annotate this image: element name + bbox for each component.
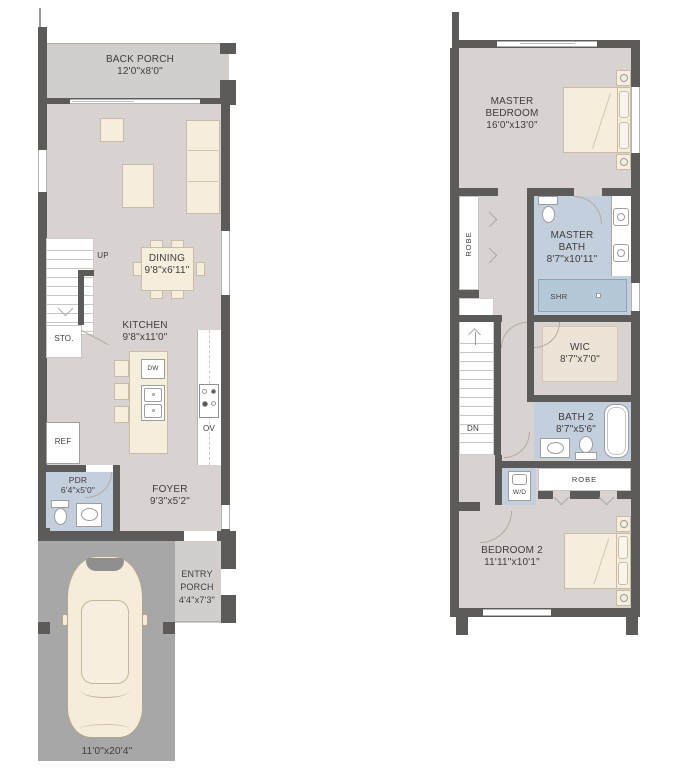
room-name: MASTER BEDROOM <box>477 96 547 120</box>
washer-lid <box>512 474 527 485</box>
dishwasher-label: DW <box>141 365 165 373</box>
lamp <box>620 158 628 166</box>
robe-label: ROBE <box>463 224 475 264</box>
room-name: FOYER <box>138 484 202 496</box>
room-dims: 11'11"x10'1" <box>477 557 547 569</box>
storage-label: STO. <box>46 334 82 343</box>
armchair <box>100 118 124 142</box>
sink-bowl <box>617 249 625 257</box>
floor2-master-bath-label: MASTER BATH 8'7"x10'11" <box>542 230 602 266</box>
floor2-wic-label: WIC 8'7"x7'0" <box>550 342 610 366</box>
bed2 <box>564 533 617 589</box>
wall <box>617 491 632 499</box>
wall <box>221 595 236 623</box>
wall <box>450 290 479 298</box>
driveway-dims: 11'0"x20'4" <box>57 746 157 758</box>
floor2-master-bedroom-label: MASTER BEDROOM 16'0"x13'0" <box>477 96 547 132</box>
toilet-bowl <box>54 508 67 525</box>
burner <box>211 401 216 406</box>
room-dims: 4'4"x7'3" <box>171 594 223 607</box>
lamp <box>620 594 628 602</box>
wall <box>602 188 632 196</box>
bar-stool <box>114 360 129 377</box>
pillow <box>619 122 629 149</box>
room-dims: 9'8"x11'0" <box>109 332 181 344</box>
dining-chair <box>150 290 163 299</box>
coffee-table <box>122 164 154 208</box>
room-name: DINING <box>135 253 199 265</box>
wall <box>113 465 120 541</box>
wall <box>450 315 502 322</box>
floor1-foyer-label: FOYER 9'3"x5'2" <box>138 484 202 508</box>
sink-bowl <box>617 213 625 221</box>
master-bed <box>563 87 619 153</box>
floorplan: BACK PORCH 12'0"x8'0" UP STO. DINING 9'8… <box>0 0 675 783</box>
wall <box>220 43 236 54</box>
sofa <box>186 120 220 214</box>
pillow <box>618 562 628 585</box>
window <box>221 231 230 295</box>
front-door-opening <box>184 531 217 541</box>
room-name: BEDROOM 2 <box>477 545 547 557</box>
room-name: WIC <box>550 342 610 354</box>
room-name: MASTER BATH <box>542 230 602 254</box>
robe-label: ROBE <box>538 474 631 486</box>
room-name: ENTRY PORCH <box>171 568 223 594</box>
bathtub-inner <box>607 407 626 455</box>
dining-chair <box>171 290 184 299</box>
lamp <box>620 520 628 528</box>
floor1-dining-label: DINING 9'8"x6'11" <box>135 253 199 277</box>
room-dims: 16'0"x13'0" <box>477 120 547 132</box>
bar-stool <box>114 406 129 423</box>
room-dims: 12'0"x8'0" <box>90 66 190 78</box>
toilet <box>51 500 69 508</box>
sink-drain <box>152 409 155 412</box>
wall <box>626 617 638 635</box>
floor1-pdr-label: PDR 6'4"x5'0" <box>46 475 110 495</box>
floor1-entry-porch-label: ENTRY PORCH 4'4"x7'3" <box>171 568 223 607</box>
stair-treads <box>46 250 94 335</box>
window <box>631 87 640 153</box>
floor1-back-porch-label: BACK PORCH 12'0"x8'0" <box>90 54 190 78</box>
stairs-down-label: DN <box>462 424 484 433</box>
wall <box>494 318 501 455</box>
room-dims: 9'8"x6'11" <box>135 265 199 277</box>
porch-edge-line <box>175 621 221 622</box>
washer-dryer-label: W/D <box>508 489 531 497</box>
oven-label: OV <box>197 424 221 433</box>
toilet <box>538 196 558 205</box>
window <box>497 41 597 47</box>
wall <box>450 502 480 511</box>
room-dims: 9'3"x5'2" <box>138 496 202 508</box>
wall <box>527 315 640 322</box>
door-opening <box>86 465 113 472</box>
room-name: BATH 2 <box>548 412 604 424</box>
burner <box>202 389 207 394</box>
floor1-kitchen-label: KITCHEN 9'8"x11'0" <box>109 320 181 344</box>
wall <box>78 270 84 325</box>
room-name: KITCHEN <box>109 320 181 332</box>
room-dims: 8'7"x5'6" <box>548 424 604 436</box>
car-windshield-line <box>81 684 129 698</box>
porch-railing <box>46 43 229 44</box>
sink-drain <box>152 393 155 396</box>
car-mirror <box>62 614 68 626</box>
room-name: BACK PORCH <box>90 54 190 66</box>
wall <box>527 395 640 402</box>
wall <box>450 48 459 615</box>
wall <box>570 491 600 499</box>
wall <box>495 455 502 505</box>
car-mirror <box>142 614 148 626</box>
wall <box>163 622 175 634</box>
wall <box>534 188 574 196</box>
pillow <box>619 91 629 118</box>
room-dims: 6'4"x5'0" <box>46 485 110 495</box>
sofa-cushion-line <box>188 150 218 151</box>
toilet <box>575 452 597 460</box>
room-dims: 8'7"x10'11" <box>542 254 602 266</box>
toilet-bowl <box>579 436 593 453</box>
car-rear-window <box>86 558 124 571</box>
wall <box>450 188 498 196</box>
sofa-cushion-line <box>188 181 218 182</box>
stairs-up-label: UP <box>94 251 112 260</box>
floor2-bath2-label: BATH 2 8'7"x5'6" <box>548 412 604 436</box>
car-roof <box>81 600 129 684</box>
burner <box>202 401 208 407</box>
window <box>221 505 230 529</box>
wall <box>538 491 553 499</box>
refrigerator-label: REF <box>46 437 80 446</box>
window-mullion <box>520 43 575 44</box>
room-dims: 8'7"x7'0" <box>550 354 610 366</box>
wall <box>502 461 640 468</box>
window <box>38 150 47 192</box>
wall <box>456 617 468 635</box>
wall <box>38 528 50 541</box>
toilet-bowl <box>542 206 555 223</box>
window <box>483 609 551 616</box>
wall <box>38 27 47 104</box>
shower-label: SHR <box>546 291 572 303</box>
burner <box>211 389 216 394</box>
sink-bowl <box>81 508 98 521</box>
bar-stool <box>114 383 129 400</box>
room-name: PDR <box>46 475 110 485</box>
wall <box>221 541 236 569</box>
floor2-bedroom2-label: BEDROOM 2 11'11"x10'1" <box>477 545 547 569</box>
shower-drain <box>596 293 601 298</box>
pillow <box>618 536 628 559</box>
window <box>631 283 640 311</box>
wall <box>527 188 534 402</box>
car-hood-line <box>80 724 130 734</box>
sink-bowl <box>547 442 564 454</box>
lamp <box>620 74 628 82</box>
wall <box>221 465 230 541</box>
wall <box>38 622 50 634</box>
sliding-door-line <box>72 101 134 102</box>
